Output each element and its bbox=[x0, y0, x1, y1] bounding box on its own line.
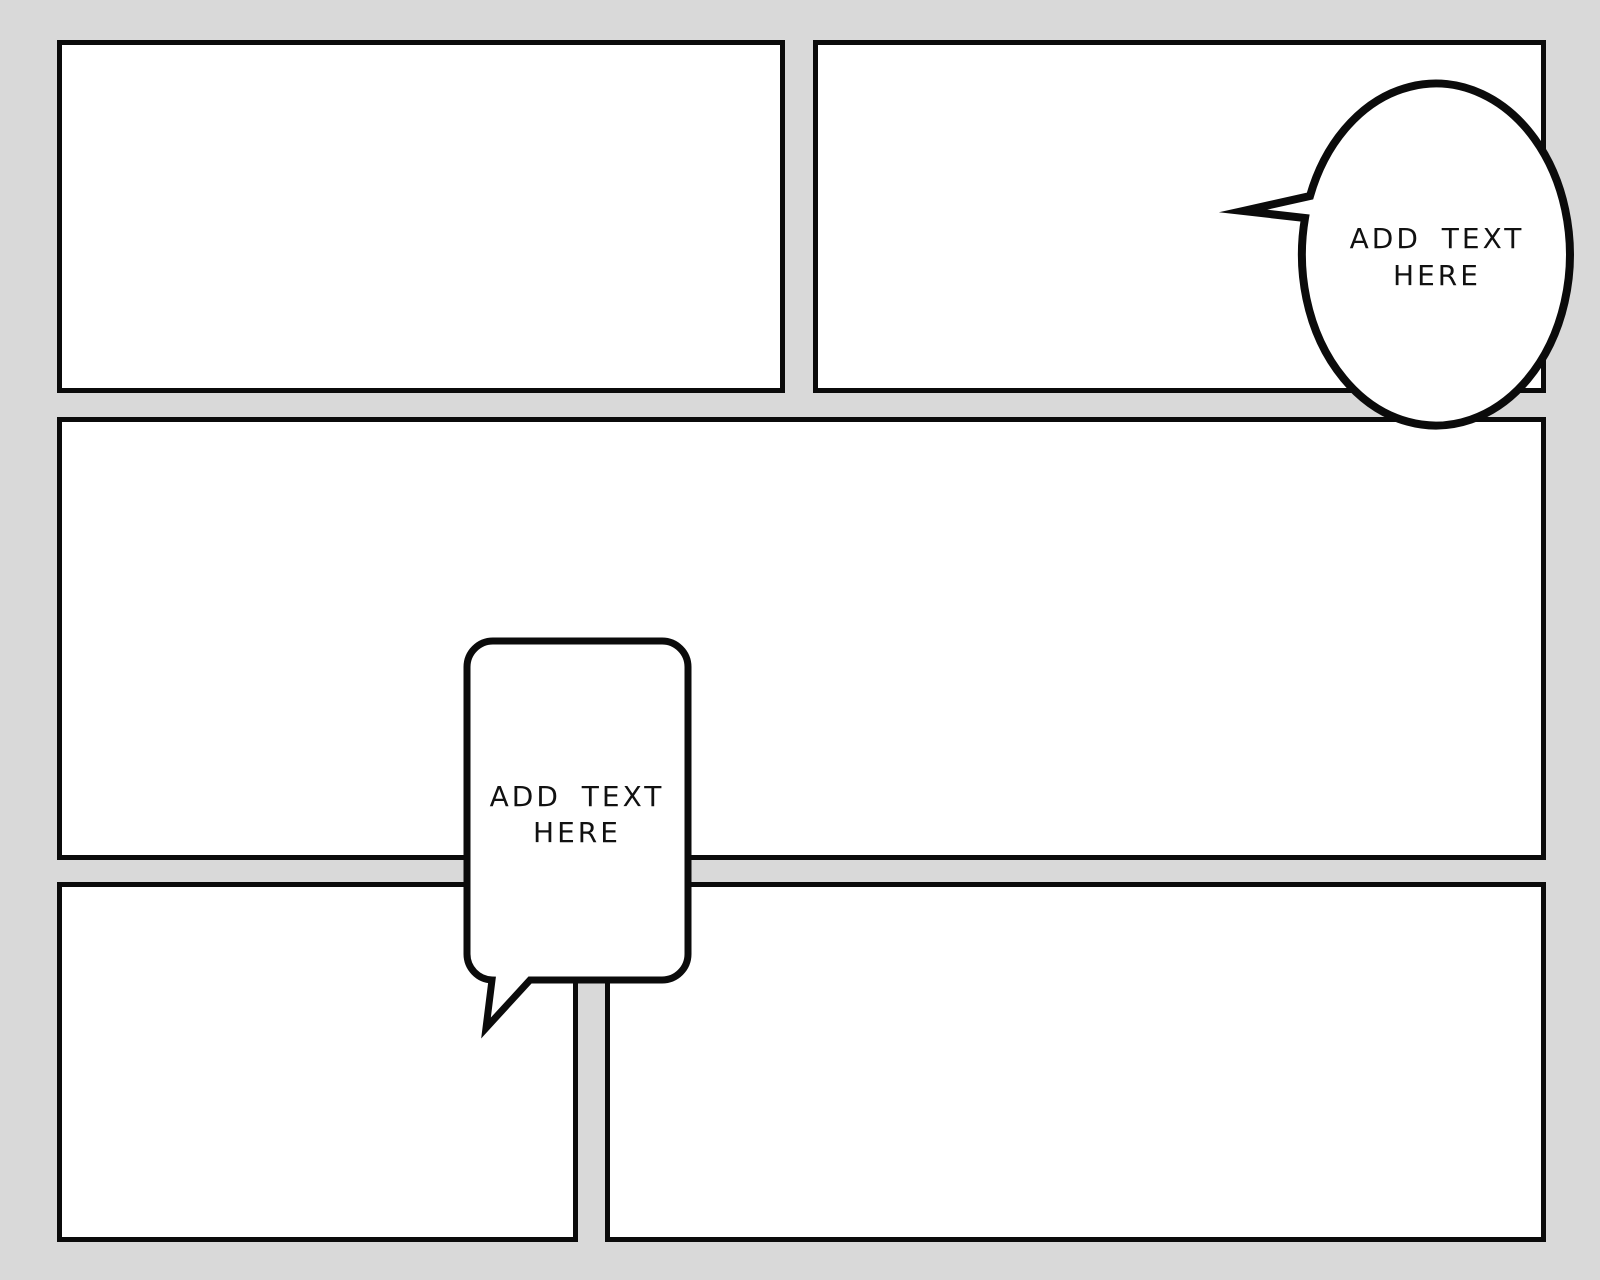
speech-bubble-rect-text-line1: ADD TEXT bbox=[490, 780, 665, 813]
speech-bubble-rounded-rect[interactable]: ADD TEXT HERE bbox=[450, 620, 705, 1045]
speech-bubble-oval-text-line2: HERE bbox=[1393, 259, 1481, 292]
speech-bubble-oval[interactable]: ADD TEXT HERE bbox=[1225, 55, 1590, 445]
speech-bubble-rect-text-line2: HERE bbox=[533, 816, 621, 849]
comic-panel-middle[interactable] bbox=[57, 417, 1546, 860]
comic-panel-top-left[interactable] bbox=[57, 40, 785, 393]
comic-template-page: ADD TEXT HERE ADD TEXT HERE bbox=[0, 0, 1600, 1280]
comic-panel-bottom-right[interactable] bbox=[605, 882, 1546, 1242]
speech-bubble-oval-text-line1: ADD TEXT bbox=[1350, 222, 1525, 255]
